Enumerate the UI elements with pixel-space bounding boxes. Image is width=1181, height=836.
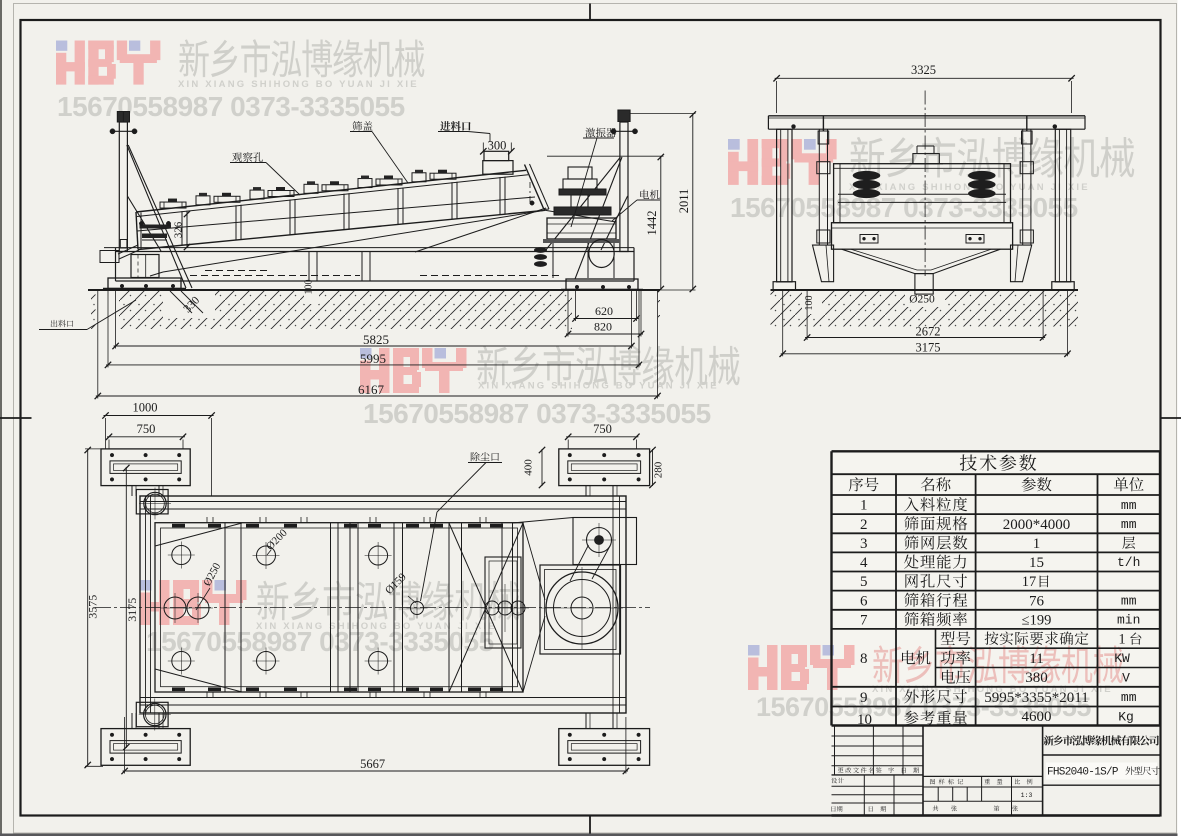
svg-text:5995: 5995 bbox=[360, 351, 386, 366]
svg-text:5825: 5825 bbox=[363, 332, 389, 347]
svg-text:1: 1 bbox=[860, 498, 868, 514]
svg-text:mm: mm bbox=[1121, 517, 1137, 532]
svg-text:1:3: 1:3 bbox=[1021, 792, 1033, 799]
svg-text:4600: 4600 bbox=[1022, 709, 1052, 725]
svg-text:15: 15 bbox=[1029, 555, 1044, 571]
svg-text:100: 100 bbox=[804, 296, 815, 311]
svg-text:15670558987 0373-3335055: 15670558987 0373-3335055 bbox=[730, 192, 1078, 223]
svg-text:750: 750 bbox=[593, 422, 612, 436]
svg-text:7: 7 bbox=[860, 612, 868, 628]
svg-text:76: 76 bbox=[1029, 593, 1045, 609]
svg-text:FHS2040-1S/P: FHS2040-1S/P bbox=[1047, 767, 1119, 779]
svg-text:100: 100 bbox=[304, 280, 315, 295]
svg-text:4: 4 bbox=[860, 555, 868, 571]
svg-text:3175: 3175 bbox=[916, 340, 941, 354]
svg-text:8: 8 bbox=[860, 651, 868, 667]
svg-text:820: 820 bbox=[594, 320, 612, 334]
svg-text:5: 5 bbox=[860, 574, 868, 590]
svg-text:9: 9 bbox=[860, 690, 868, 706]
svg-text:1: 1 bbox=[1118, 632, 1125, 648]
svg-text:10: 10 bbox=[857, 712, 872, 728]
svg-text:3575: 3575 bbox=[86, 595, 100, 619]
svg-text:750: 750 bbox=[137, 422, 156, 436]
svg-text:V: V bbox=[1122, 670, 1130, 685]
svg-text:15670558987 0373-3335055: 15670558987 0373-3335055 bbox=[363, 398, 711, 429]
svg-text:15670558987 0373-3335055: 15670558987 0373-3335055 bbox=[146, 626, 494, 657]
svg-text:mm: mm bbox=[1121, 594, 1137, 609]
svg-text:Ø250: Ø250 bbox=[909, 294, 935, 306]
svg-text:5995*3355*2011: 5995*3355*2011 bbox=[984, 690, 1088, 706]
svg-text:1: 1 bbox=[1033, 536, 1041, 552]
svg-text:XIN XIANG SHIHONG BO YUAN JI X: XIN XIANG SHIHONG BO YUAN JI XIE bbox=[178, 79, 419, 90]
svg-text:2: 2 bbox=[860, 517, 868, 533]
svg-text:326: 326 bbox=[173, 221, 185, 238]
svg-text:3325: 3325 bbox=[911, 63, 936, 77]
svg-text:6: 6 bbox=[860, 593, 868, 609]
svg-text:t/h: t/h bbox=[1117, 555, 1140, 570]
svg-text:min: min bbox=[1117, 613, 1140, 628]
svg-text:11: 11 bbox=[1029, 651, 1043, 667]
svg-text:15670558987 0373-3335055: 15670558987 0373-3335055 bbox=[57, 91, 405, 122]
svg-text:400: 400 bbox=[523, 459, 535, 476]
svg-text:6167: 6167 bbox=[358, 382, 385, 397]
svg-text:280: 280 bbox=[653, 461, 665, 478]
svg-text:KW: KW bbox=[1114, 651, 1130, 666]
svg-text:1442: 1442 bbox=[645, 211, 659, 236]
svg-text:1000: 1000 bbox=[133, 401, 158, 415]
svg-text:2672: 2672 bbox=[916, 325, 941, 339]
svg-text:≤199: ≤199 bbox=[1022, 612, 1052, 628]
svg-text:mm: mm bbox=[1121, 690, 1137, 705]
svg-text:5667: 5667 bbox=[360, 757, 385, 771]
svg-text:2000*4000: 2000*4000 bbox=[1003, 517, 1071, 533]
svg-text:XIN XIANG SHIHONG BO YUAN JI X: XIN XIANG SHIHONG BO YUAN JI XIE bbox=[478, 381, 719, 392]
svg-text:380: 380 bbox=[1025, 670, 1048, 686]
svg-text:3: 3 bbox=[860, 536, 868, 552]
svg-text:Kg: Kg bbox=[1118, 709, 1134, 724]
svg-text:mm: mm bbox=[1121, 498, 1137, 513]
svg-text:2011: 2011 bbox=[677, 189, 691, 214]
svg-text:620: 620 bbox=[595, 304, 613, 318]
svg-text:3175: 3175 bbox=[125, 598, 139, 622]
svg-text:17: 17 bbox=[1022, 574, 1037, 590]
